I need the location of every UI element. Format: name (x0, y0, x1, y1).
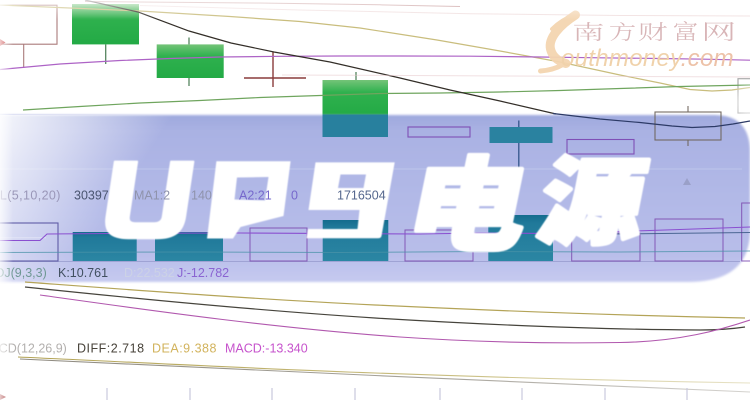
svg-text:30397: 30397 (74, 189, 109, 203)
svg-text:MACD:-13.340: MACD:-13.340 (225, 342, 308, 356)
svg-text:140: 140 (191, 189, 212, 203)
svg-text:0: 0 (291, 189, 298, 203)
svg-text:DEA:9.388: DEA:9.388 (152, 342, 217, 356)
svg-text:D:22.532: D:22.532 (124, 266, 175, 280)
svg-text:MA1:2: MA1:2 (134, 189, 170, 203)
svg-text:A2:21: A2:21 (239, 189, 272, 203)
svg-text:outhmoney.com: outhmoney.com (561, 45, 734, 72)
svg-text:1716504: 1716504 (337, 189, 386, 203)
svg-text:K:10.761: K:10.761 (58, 266, 108, 280)
svg-text:DIFF:2.718: DIFF:2.718 (77, 342, 145, 356)
svg-text:J:-12.782: J:-12.782 (177, 266, 229, 280)
